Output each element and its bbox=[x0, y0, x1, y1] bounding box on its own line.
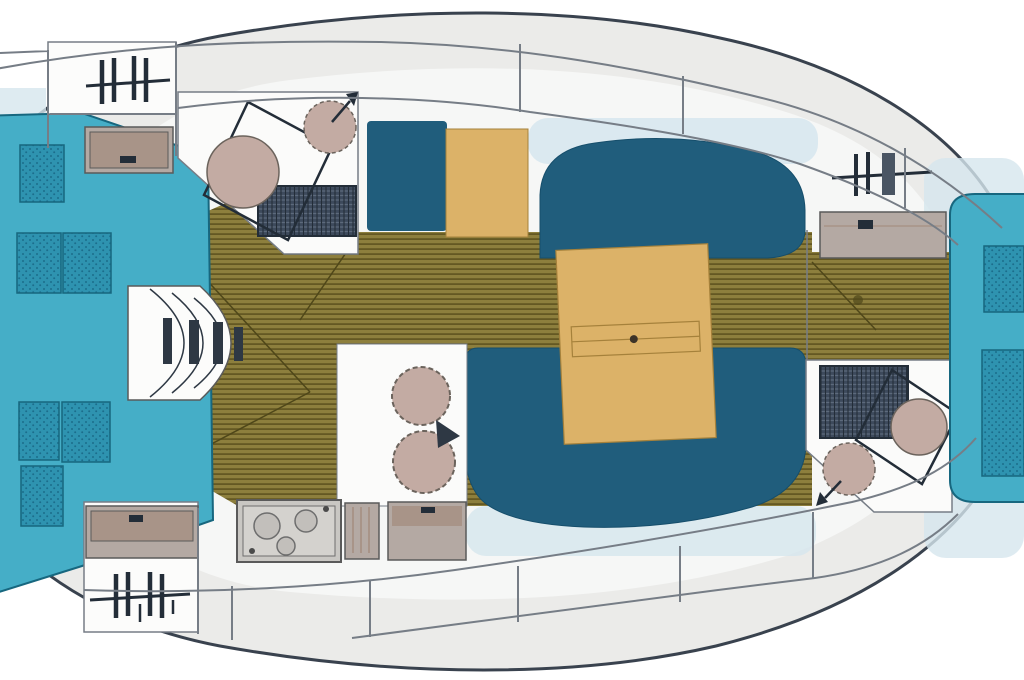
nav-seat bbox=[367, 121, 447, 231]
berth-cushion bbox=[63, 233, 111, 293]
stove-knob bbox=[323, 506, 329, 512]
floor-plan-canvas bbox=[0, 0, 1024, 680]
berth-cushion bbox=[62, 402, 110, 462]
galley-locker bbox=[388, 502, 466, 560]
burner bbox=[277, 537, 295, 555]
drawer-handle bbox=[129, 515, 143, 522]
burner bbox=[295, 510, 317, 532]
slat-bar bbox=[234, 327, 243, 361]
aft-floor-fitting bbox=[853, 295, 863, 305]
saloon-table bbox=[556, 244, 716, 444]
forward-dresser-top bbox=[85, 127, 173, 173]
stove bbox=[237, 500, 341, 562]
nav-chart-table bbox=[446, 129, 528, 237]
berth-cushion bbox=[984, 246, 1024, 312]
toilet bbox=[891, 399, 947, 455]
floor-aft bbox=[810, 252, 950, 372]
slat-bar bbox=[189, 320, 199, 364]
forward-dresser-bottom bbox=[86, 506, 198, 558]
fridge bbox=[345, 503, 379, 559]
berth-cushion bbox=[20, 145, 64, 202]
sink-basin bbox=[304, 101, 356, 153]
settee-top bbox=[540, 139, 805, 259]
berth-cushion bbox=[17, 233, 61, 293]
stove-knob bbox=[249, 548, 255, 554]
sink-basin bbox=[823, 443, 875, 495]
berth-cushion bbox=[982, 350, 1024, 476]
yacht-floor-plan bbox=[0, 0, 1024, 680]
galley-sink-upper bbox=[392, 367, 450, 425]
slat-bar bbox=[163, 318, 172, 364]
berth-cushion bbox=[21, 466, 63, 526]
berth-cushion bbox=[19, 402, 59, 460]
burner bbox=[254, 513, 280, 539]
shelf-handle bbox=[858, 220, 873, 229]
toilet bbox=[207, 136, 279, 208]
drawer-handle bbox=[120, 156, 136, 163]
aft-shelf bbox=[820, 212, 946, 258]
locker-handle bbox=[421, 507, 435, 513]
slat-bar bbox=[213, 322, 223, 364]
